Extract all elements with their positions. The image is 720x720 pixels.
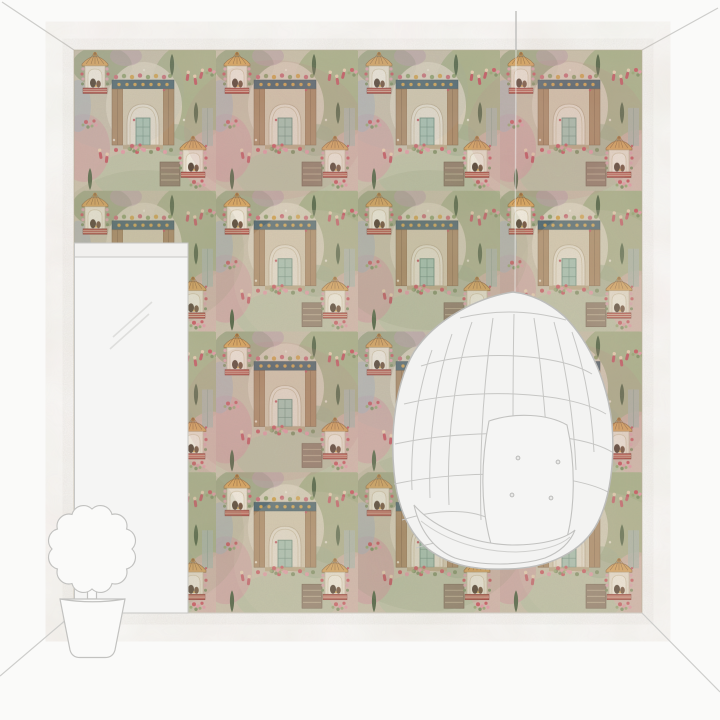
- room-scene-svg: [0, 0, 720, 720]
- plant-pot: [60, 599, 125, 658]
- topiary-foliage: [49, 506, 136, 593]
- door-transom-bar: [75, 243, 189, 257]
- chair-back-cushion: [483, 415, 573, 549]
- room-scene: [0, 0, 720, 720]
- cord-over-wallpaper: [515, 50, 516, 293]
